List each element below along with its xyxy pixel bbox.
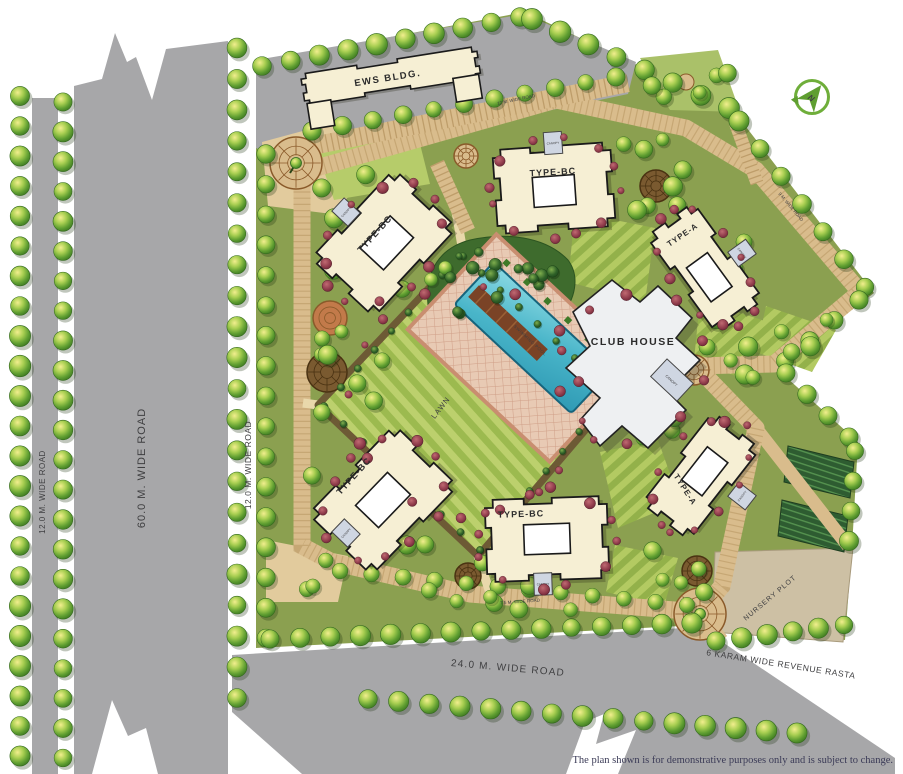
tree-icon	[10, 686, 33, 710]
shrub-icon	[671, 295, 682, 306]
shrub-icon	[456, 513, 466, 523]
shrub-icon	[584, 498, 595, 509]
shrub-icon	[346, 453, 355, 462]
tree-icon	[227, 564, 250, 588]
tree-icon	[10, 266, 33, 289]
shrub-icon	[480, 283, 487, 290]
courtyard	[532, 175, 576, 208]
tree-icon	[228, 596, 248, 617]
shrub-icon	[585, 306, 594, 315]
shrub-icon	[738, 254, 745, 261]
disclaimer-text: The plan shown is for demonstrative purp…	[573, 755, 893, 766]
shrub-icon	[699, 375, 709, 385]
shrub-icon	[696, 312, 703, 319]
shrub-icon	[494, 156, 505, 167]
shrub-icon	[610, 162, 618, 170]
shrub-icon	[590, 436, 597, 443]
tree-icon	[227, 347, 250, 371]
shrub-icon	[319, 507, 328, 516]
road-12m-right-label: 12.0 M. WIDE ROAD	[243, 421, 253, 509]
shrub-icon	[322, 280, 333, 291]
tree-icon	[10, 746, 33, 770]
site-plan: SWIMMING POOL CANOPY CANOPYCANOPYCANOPYC…	[0, 0, 903, 774]
shrub-icon	[707, 417, 715, 425]
mandala-plaza	[270, 137, 322, 189]
road-60m-label: 60.0 M. WIDE ROAD	[136, 408, 148, 528]
shrub-icon	[321, 258, 332, 269]
shrub-icon	[750, 307, 759, 316]
shrub-icon	[613, 537, 621, 545]
tree-icon	[228, 286, 249, 308]
shrub-icon	[545, 482, 556, 493]
shrub-icon	[535, 488, 543, 496]
shrub-icon	[345, 391, 353, 399]
shrub-icon	[407, 283, 415, 291]
shrub-icon	[680, 433, 688, 441]
shrub-icon	[579, 418, 585, 424]
tree-icon	[9, 325, 33, 350]
shrub-icon	[670, 205, 679, 214]
shrub-icon	[689, 206, 696, 213]
shrub-icon	[550, 234, 560, 244]
tree-icon	[11, 537, 32, 559]
shrub-icon	[321, 533, 331, 543]
shrub-icon	[437, 219, 447, 229]
shrub-icon	[432, 452, 440, 460]
site-plan-svg: SWIMMING POOL CANOPY CANOPYCANOPYCANOPYC…	[0, 0, 903, 774]
shrub-icon	[557, 346, 566, 355]
shrub-icon	[525, 490, 534, 499]
shrub-icon	[354, 438, 366, 450]
shrub-icon	[622, 439, 632, 449]
road-12m-left-label: 12.0 M. WIDE ROAD	[38, 450, 47, 534]
tree-icon	[228, 380, 249, 401]
tree-icon	[10, 146, 33, 170]
shrub-icon	[746, 454, 752, 460]
tree-icon	[10, 446, 33, 470]
shrub-icon	[377, 182, 389, 194]
shrub-icon	[555, 466, 563, 474]
shrub-icon	[378, 435, 386, 443]
shrub-icon	[489, 201, 496, 208]
shrub-icon	[658, 521, 666, 529]
shrub-icon	[538, 584, 549, 595]
shrub-icon	[717, 319, 728, 330]
shrub-icon	[375, 297, 384, 306]
tree-icon	[227, 317, 250, 341]
shrub-icon	[691, 527, 698, 534]
shrub-icon	[431, 195, 439, 203]
shrub-icon	[481, 509, 489, 517]
bldg-type-bc-bottom-center-label: TYPE-BC	[497, 508, 544, 520]
tree-icon	[9, 355, 34, 380]
shrub-icon	[655, 213, 666, 224]
shrub-icon	[475, 530, 483, 538]
shrub-icon	[381, 552, 389, 560]
shrub-icon	[719, 416, 731, 428]
tree-icon	[228, 534, 248, 555]
tree-icon	[11, 567, 33, 589]
shrub-icon	[423, 261, 434, 272]
shrub-icon	[743, 422, 750, 429]
tree-icon	[227, 100, 250, 124]
shrub-icon	[653, 248, 661, 256]
tree-icon	[10, 86, 32, 109]
shrub-icon	[323, 231, 332, 240]
tree-icon	[11, 297, 33, 319]
shrub-icon	[608, 516, 616, 524]
tree-icon	[228, 194, 249, 216]
shrub-icon	[409, 178, 419, 188]
tree-icon	[10, 206, 33, 229]
shrub-icon	[419, 289, 430, 300]
shrub-icon	[571, 229, 580, 238]
tree-icon	[9, 385, 33, 410]
shrub-icon	[348, 201, 355, 208]
shrub-icon	[554, 325, 565, 336]
shrub-icon	[412, 435, 423, 446]
shrub-icon	[354, 557, 361, 564]
shrub-icon	[475, 553, 483, 561]
shrub-icon	[734, 322, 743, 331]
tree-icon	[9, 655, 33, 680]
shrub-icon	[665, 273, 676, 284]
left-12m-road	[32, 98, 58, 774]
shrub-icon	[697, 336, 707, 346]
shrub-icon	[714, 507, 723, 516]
shrub-icon	[666, 529, 673, 536]
tree-icon	[228, 163, 249, 184]
shrub-icon	[675, 411, 686, 422]
mandala-plaza	[454, 144, 478, 168]
shrub-icon	[555, 386, 566, 397]
shrub-icon	[362, 342, 369, 349]
shrub-icon	[404, 537, 414, 547]
shrub-icon	[561, 580, 570, 589]
shrub-icon	[485, 183, 495, 193]
shrub-icon	[529, 136, 538, 145]
tree-icon	[11, 717, 33, 739]
tree-icon	[228, 225, 248, 246]
shrub-icon	[736, 482, 743, 489]
club-house-label: CLUB HOUSE	[591, 336, 675, 348]
shrub-icon	[439, 482, 449, 492]
palm-tree-icon	[291, 158, 302, 169]
tree-icon	[227, 38, 250, 61]
tree-icon	[10, 506, 33, 530]
tree-icon	[11, 117, 32, 139]
shrub-icon	[434, 512, 444, 522]
tree-icon	[228, 132, 249, 154]
tree-icon	[227, 626, 250, 650]
tree-icon	[11, 237, 32, 259]
shrub-icon	[510, 289, 521, 300]
shrub-icon	[746, 278, 755, 287]
shrub-icon	[341, 298, 348, 305]
shrub-icon	[596, 218, 606, 228]
courtyard	[523, 523, 570, 555]
tree-icon	[10, 416, 33, 440]
shrub-icon	[594, 144, 602, 152]
shrub-icon	[574, 376, 584, 386]
tree-icon	[9, 625, 34, 650]
shrub-icon	[407, 497, 416, 506]
tree-icon	[10, 176, 32, 199]
shrub-icon	[601, 562, 611, 572]
shrub-icon	[560, 134, 567, 141]
tree-icon	[9, 475, 33, 500]
shrub-icon	[648, 494, 658, 504]
shrub-icon	[618, 187, 625, 194]
shrub-icon	[378, 314, 388, 324]
road-60m-surface	[74, 33, 228, 774]
shrub-icon	[718, 228, 728, 238]
tree-icon	[228, 256, 249, 278]
shrub-icon	[621, 289, 633, 301]
north-arrow-icon: N	[791, 76, 830, 116]
shrub-icon	[655, 468, 662, 475]
tree-icon	[227, 69, 249, 92]
tree-icon	[9, 595, 34, 620]
shrub-icon	[509, 226, 518, 235]
shrub-icon	[499, 576, 506, 583]
